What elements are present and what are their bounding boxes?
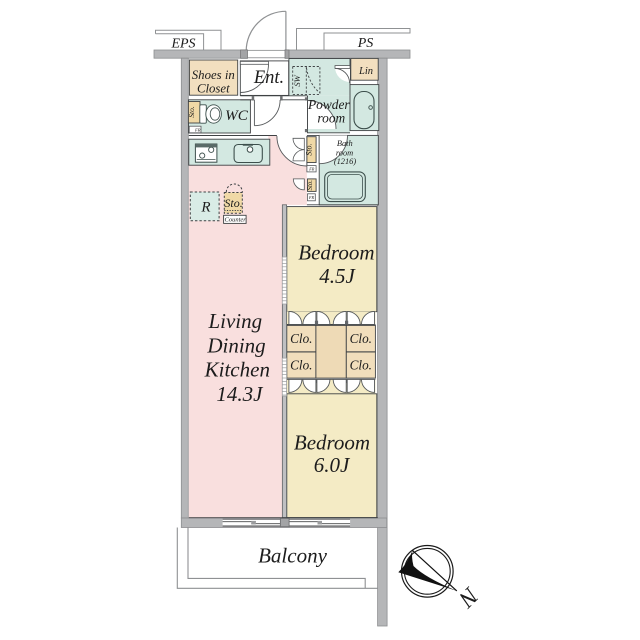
svg-text:6.0J: 6.0J [314, 453, 351, 477]
svg-text:Clo.: Clo. [350, 331, 372, 346]
svg-text:Sto.: Sto. [187, 106, 196, 118]
svg-text:Lin: Lin [358, 66, 373, 77]
svg-text:room: room [317, 111, 345, 126]
svg-text:Ent.: Ent. [253, 68, 284, 88]
svg-text:Dining: Dining [206, 333, 265, 357]
svg-text:Sto.: Sto. [307, 180, 314, 191]
svg-text:EPS: EPS [170, 37, 195, 52]
svg-text:4.5J: 4.5J [319, 264, 356, 288]
svg-text:Clo.: Clo. [350, 358, 372, 373]
svg-text:FR: FR [308, 167, 315, 172]
svg-text:Closet: Closet [197, 81, 230, 95]
svg-text:Living: Living [207, 309, 262, 333]
svg-text:Bedroom: Bedroom [294, 431, 370, 455]
svg-text:Balcony: Balcony [258, 544, 327, 568]
svg-text:PS: PS [357, 36, 374, 51]
svg-text:14.3J: 14.3J [216, 382, 264, 406]
svg-text:Clo.: Clo. [290, 358, 312, 373]
svg-text:FR: FR [194, 127, 201, 132]
svg-text:Shoes in: Shoes in [192, 68, 235, 82]
svg-text:FR: FR [308, 195, 315, 200]
svg-text:Sto.: Sto. [305, 143, 314, 155]
svg-text:Kitchen: Kitchen [204, 357, 270, 381]
svg-text:Sto.: Sto. [224, 196, 242, 210]
svg-text:WC: WC [225, 107, 249, 124]
svg-text:(1216): (1216) [334, 157, 357, 166]
svg-text:Bath: Bath [337, 139, 353, 148]
svg-text:SW: SW [292, 74, 302, 86]
svg-text:Bedroom: Bedroom [298, 241, 374, 265]
svg-text:Clo.: Clo. [290, 331, 312, 346]
svg-text:Counter: Counter [225, 217, 247, 224]
svg-text:R: R [200, 199, 210, 215]
